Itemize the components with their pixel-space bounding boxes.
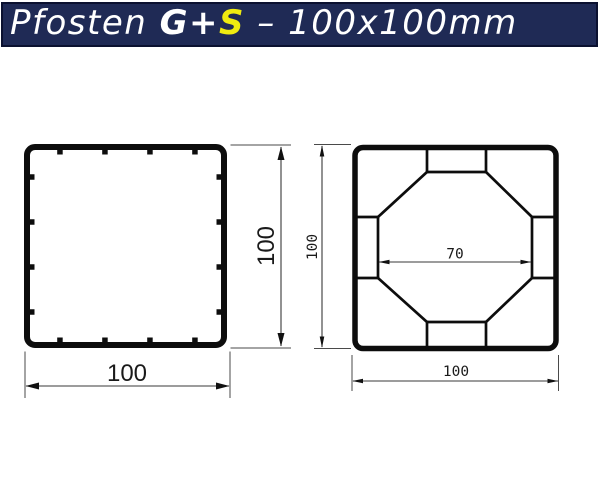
right-profile-drawing: 70 100 100	[305, 145, 559, 392]
width-dimension-label: 100	[107, 360, 147, 387]
arrowhead-down-icon	[320, 337, 325, 348]
arrowhead-right-icon	[548, 379, 559, 384]
height-dimension-label: 100	[253, 226, 280, 266]
right-drawing-width-dimension: 100	[352, 355, 559, 391]
technical-drawing-canvas: 100 100 70	[0, 0, 600, 487]
left-profile-drawing: 100 100	[25, 145, 291, 398]
right-drawing-core-dimension: 70	[379, 247, 531, 265]
arrowhead-left-icon	[352, 379, 363, 384]
arrowhead-down-icon	[278, 333, 285, 347]
right-drawing-height-dimension: 100	[305, 145, 351, 349]
left-profile-outline	[27, 147, 224, 345]
arrowhead-left-icon	[379, 260, 390, 265]
left-profile-inner-tabs	[30, 150, 221, 342]
left-drawing-width-dimension: 100	[25, 352, 230, 399]
width-dimension-label: 100	[443, 364, 469, 380]
height-dimension-label: 100	[305, 234, 321, 260]
arrowhead-right-icon	[216, 383, 230, 390]
page: Pfosten G+S – 100x100mm 100	[0, 0, 600, 487]
arrowhead-up-icon	[320, 145, 325, 156]
arrowhead-left-icon	[26, 383, 40, 390]
arrowhead-right-icon	[521, 260, 532, 265]
arrowhead-up-icon	[278, 147, 285, 161]
left-drawing-height-dimension: 100	[231, 145, 292, 348]
core-width-dimension-label: 70	[446, 247, 463, 263]
